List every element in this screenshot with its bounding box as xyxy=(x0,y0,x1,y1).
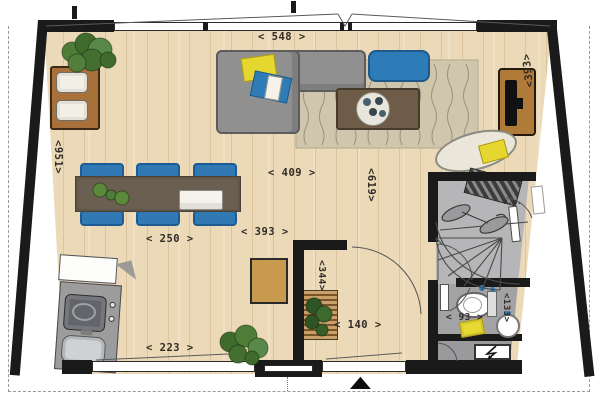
dim-kitchen-width: < 250 > xyxy=(146,233,194,245)
dim-living-depth: <619> xyxy=(365,168,377,202)
plant-bottom xyxy=(220,325,268,365)
dim-hall-depth: <344> xyxy=(316,260,327,291)
entrance-arrow-icon: ▲ xyxy=(343,371,378,395)
dim-top-width: < 548 > xyxy=(258,31,306,43)
window-opening-lines xyxy=(46,14,550,360)
dim-hall-width: < 140 > xyxy=(334,319,382,331)
lightning-icon xyxy=(487,346,496,359)
dim-toilet-width: < 93 > xyxy=(446,312,483,323)
dim-living-width: < 409 > xyxy=(268,167,316,179)
plant-top-left xyxy=(62,33,116,72)
dim-left-depth: <951> xyxy=(52,140,64,174)
plant-hallway xyxy=(305,298,332,336)
dim-toilet-depth: <133> xyxy=(501,293,511,323)
stairwell-note: v.v. xyxy=(503,198,522,206)
dim-dining-width: < 393 > xyxy=(241,226,289,238)
plants-on-table xyxy=(93,183,129,205)
bicycle xyxy=(440,201,510,236)
dim-kitchen-bottom-width: < 223 > xyxy=(146,342,194,354)
floor-plan: < 548 > <393> < 409 > <619> <951> < 250 … xyxy=(0,0,600,400)
